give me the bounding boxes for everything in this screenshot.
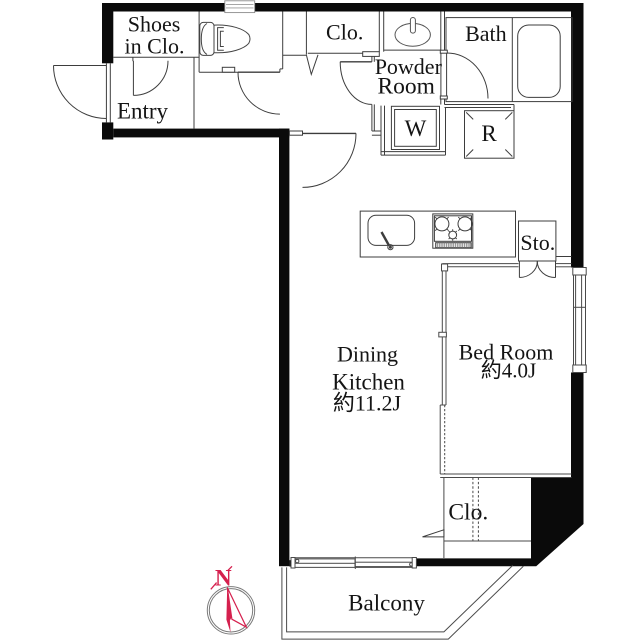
svg-text:Balcony: Balcony (348, 591, 425, 616)
svg-text:Entry: Entry (117, 99, 169, 124)
svg-text:Clo.: Clo. (326, 20, 363, 45)
svg-text:in Clo.: in Clo. (125, 34, 185, 59)
svg-text:Shoes: Shoes (128, 11, 181, 36)
svg-text:W: W (405, 116, 427, 141)
svg-text:Bath: Bath (465, 21, 507, 46)
svg-text:Clo.: Clo. (448, 500, 488, 526)
svg-text:R: R (481, 121, 497, 146)
svg-text:Sto.: Sto. (520, 230, 555, 255)
svg-text:N: N (215, 565, 232, 590)
svg-text:Room: Room (377, 74, 434, 100)
svg-text:約11.2J: 約11.2J (333, 391, 402, 416)
svg-text:Dining: Dining (337, 342, 398, 367)
svg-text:約4.0J: 約4.0J (481, 359, 536, 383)
